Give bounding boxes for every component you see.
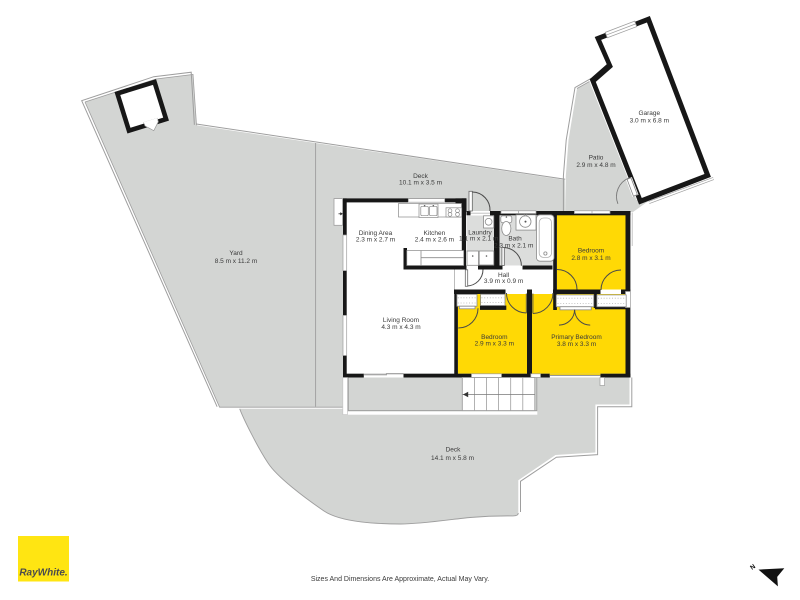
svg-text:RayWhite.: RayWhite.	[19, 568, 67, 579]
svg-text:Yard: Yard	[229, 250, 243, 257]
svg-text:Sizes And Dimensions Are Appro: Sizes And Dimensions Are Approximate, Ac…	[311, 576, 489, 583]
svg-text:Deck: Deck	[446, 447, 462, 454]
svg-text:2.4 m x 2.6 m: 2.4 m x 2.6 m	[415, 236, 454, 243]
svg-text:3.9 m x 0.9 m: 3.9 m x 0.9 m	[484, 278, 523, 285]
svg-text:Bath: Bath	[508, 236, 522, 243]
svg-text:Bedroom: Bedroom	[578, 248, 604, 255]
svg-text:4.3 m x 4.3 m: 4.3 m x 4.3 m	[381, 324, 420, 331]
svg-text:1.1 m x 2.1 m: 1.1 m x 2.1 m	[459, 236, 498, 243]
svg-text:Primary Bedroom: Primary Bedroom	[551, 334, 602, 341]
svg-text:2.3 m x 2.1 m: 2.3 m x 2.1 m	[494, 243, 533, 250]
svg-text:2.9 m x 4.8 m: 2.9 m x 4.8 m	[576, 162, 615, 169]
svg-text:2.8 m x 3.1 m: 2.8 m x 3.1 m	[571, 255, 610, 262]
svg-text:3.0 m x 6.8 m: 3.0 m x 6.8 m	[630, 117, 669, 124]
svg-text:8.5 m x 11.2 m: 8.5 m x 11.2 m	[215, 258, 258, 265]
svg-text:10.1 m x 3.5 m: 10.1 m x 3.5 m	[399, 180, 442, 187]
svg-text:Living Room: Living Room	[383, 317, 419, 324]
svg-text:3.8 m x 3.3 m: 3.8 m x 3.3 m	[557, 341, 596, 348]
svg-text:Garage: Garage	[638, 110, 660, 117]
svg-text:14.1 m x 5.8 m: 14.1 m x 5.8 m	[431, 455, 474, 462]
svg-text:2.3 m x 2.7 m: 2.3 m x 2.7 m	[356, 237, 395, 244]
svg-text:Patio: Patio	[589, 154, 604, 161]
svg-text:2.9 m x 3.3 m: 2.9 m x 3.3 m	[475, 341, 514, 348]
